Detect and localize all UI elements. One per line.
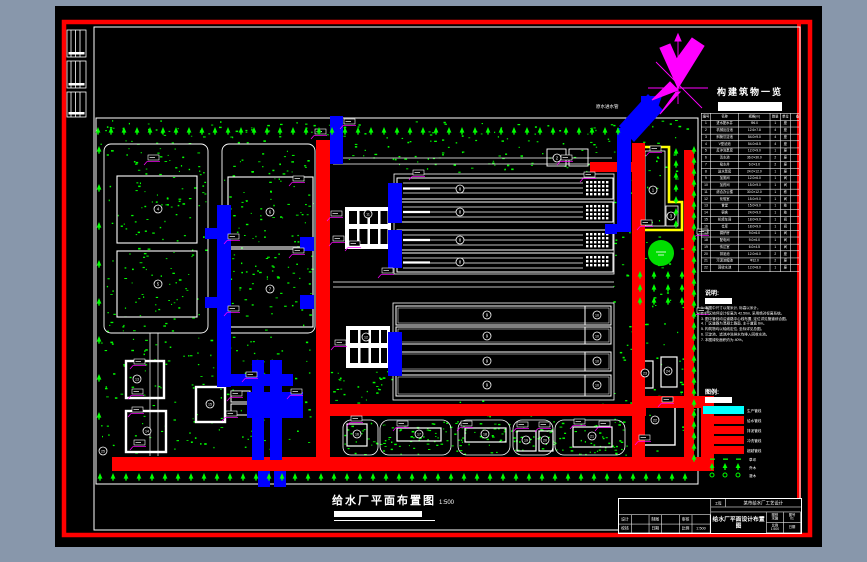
table-cell: 1 xyxy=(770,244,780,251)
table-cell: 15.0×9.0 xyxy=(739,196,770,203)
table-cell: 1 xyxy=(770,237,780,244)
svg-text:24: 24 xyxy=(666,370,670,374)
table-cell: 18.0×9.0 xyxy=(739,216,770,223)
title-block-company-cell xyxy=(619,499,710,515)
table-cell xyxy=(790,161,799,168)
table-cell xyxy=(790,189,799,196)
table-cell: 传达室 xyxy=(711,244,739,251)
legend-symbol-row: 草坪 xyxy=(705,455,799,463)
table-cell: 54.0×8.5 xyxy=(739,141,770,148)
field-value xyxy=(631,515,649,524)
table-cell: 间 xyxy=(780,216,790,223)
field-label: 校核 xyxy=(619,524,631,533)
table-cell: 座 xyxy=(780,127,790,134)
table-cell: 19 xyxy=(701,244,710,251)
table-cell xyxy=(790,148,799,155)
table-cell: 反冲洗泵房 xyxy=(711,148,739,155)
table-cell: 17 xyxy=(701,230,710,237)
project-name: 某市给水厂工艺设计 xyxy=(726,499,801,507)
table-cell xyxy=(790,120,799,127)
field-label: 制图 xyxy=(649,515,661,524)
legend-item: 排泥管线 xyxy=(703,425,799,435)
table-cell xyxy=(790,251,799,258)
field-value xyxy=(692,515,710,524)
title-block-meta-grid: 图别水施图号01比例1:500日期 xyxy=(767,512,801,533)
table-cell: 1 xyxy=(770,148,780,155)
drawing-name: 给水厂平面设计布置图 xyxy=(711,512,767,533)
table-cell: 4 xyxy=(770,127,780,134)
field-label: 审核 xyxy=(680,515,692,524)
svg-text:15: 15 xyxy=(208,403,212,407)
table-cell: 9.0×6.0 xyxy=(739,230,770,237)
svg-text:21: 21 xyxy=(590,435,594,439)
drawing-main-title: 给水厂平面布置图1:500 xyxy=(332,491,454,509)
svg-text:11: 11 xyxy=(366,213,370,217)
table-cell xyxy=(790,237,799,244)
svg-text:13: 13 xyxy=(135,378,139,382)
legend-symbol-label: 灌木 xyxy=(749,472,756,477)
svg-text:18: 18 xyxy=(483,433,487,437)
table-cell: 座 xyxy=(780,168,790,175)
table-cell: 21 xyxy=(701,258,710,265)
field-value: 1:500 xyxy=(692,524,710,533)
table-header: 数量 xyxy=(770,113,780,120)
table-header: 名称 xyxy=(711,113,739,120)
table-row: 7吸水井6.0×3.02座 xyxy=(701,161,799,168)
table-row: 4V型滤池54.0×8.54座 xyxy=(701,141,799,148)
legend-underline-bar xyxy=(705,397,732,403)
legend-symbol-label: 乔木 xyxy=(749,464,756,469)
table-cell: 座 xyxy=(780,134,790,141)
table-row: 17锅炉房9.0×6.01间 xyxy=(701,230,799,237)
table-row: 6清水池36.0×30.02座 xyxy=(701,155,799,162)
svg-text:14: 14 xyxy=(145,430,149,434)
table-cell: 3 xyxy=(701,134,710,141)
title-underline-bar xyxy=(718,102,782,111)
legend-color-bar xyxy=(703,436,744,444)
svg-text:10: 10 xyxy=(595,360,599,364)
table-cell: 12.0×8.0 xyxy=(739,265,770,272)
table-cell: 6.0×3.0 xyxy=(739,161,770,168)
table-cell: 间 xyxy=(780,223,790,230)
table-cell xyxy=(790,210,799,217)
svg-text:10: 10 xyxy=(595,384,599,388)
table-cell: 8 xyxy=(701,168,710,175)
meta-cell: 图别水施 xyxy=(767,512,784,522)
blower-building xyxy=(346,326,390,368)
table-cell: 加氯间 xyxy=(711,175,739,182)
field-value xyxy=(662,515,680,524)
table-cell xyxy=(790,182,799,189)
note-item: 7. 本图绿化面积约为 40%。 xyxy=(701,338,798,343)
table-cell: 污泥浓缩池 xyxy=(711,258,739,265)
table-cell: 1 xyxy=(770,223,780,230)
legend-color-bar xyxy=(703,446,744,454)
table-cell: 10 xyxy=(701,182,710,189)
table-cell: 2 xyxy=(770,251,780,258)
svg-text:16: 16 xyxy=(355,433,359,437)
table-cell: 18 xyxy=(701,237,710,244)
table-row: 16仓库18.0×9.01间 xyxy=(701,223,799,230)
table-cell xyxy=(790,196,799,203)
table-cell: 座 xyxy=(780,161,790,168)
table-cell: 9 xyxy=(701,175,710,182)
table-cell: 36.0×30.0 xyxy=(739,155,770,162)
table-cell: 2 xyxy=(770,258,780,265)
table-row: 12化验室15.0×9.01间 xyxy=(701,196,799,203)
table-cell: 2 xyxy=(701,127,710,134)
legend-item-label: 冲洗管线 xyxy=(747,437,761,442)
table-cell: 座 xyxy=(780,120,790,127)
table-cell: 综合办公楼 xyxy=(711,189,739,196)
table-cell: 座 xyxy=(780,258,790,265)
table-cell xyxy=(790,223,799,230)
table-header: 单位 xyxy=(780,113,790,120)
main-title-line xyxy=(334,520,435,521)
notes-title: 说明: xyxy=(705,288,799,297)
landscape-circle xyxy=(648,240,674,266)
table-cell: 机修车间 xyxy=(711,216,739,223)
table-row: 22回收水池12.0×8.01座 xyxy=(701,265,799,272)
table-cell xyxy=(790,265,799,272)
table-cell: 14 xyxy=(701,210,710,217)
table-cell: 15.0×9.0 xyxy=(739,182,770,189)
note-item: 2. 厂区地坪设计标高为 42.50m, 采用绝对标高系统。 xyxy=(701,311,798,316)
svg-text:10: 10 xyxy=(595,335,599,339)
table-cell xyxy=(790,168,799,175)
table-cell: 座 xyxy=(780,141,790,148)
table-cell xyxy=(790,230,799,237)
table-cell: 12.6×7.8 xyxy=(739,127,770,134)
table-cell: 6.0×4.5 xyxy=(739,244,770,251)
legend-item-label: 排泥管线 xyxy=(747,427,761,432)
table-cell: 54.0×9.0 xyxy=(739,134,770,141)
table-cell: 12.0×6.0 xyxy=(739,251,770,258)
title-block: 设计制图审核校核日期比例1:500 工程 某市给水厂工艺设计 给水厂平面设计布置… xyxy=(618,498,802,534)
svg-text:12: 12 xyxy=(364,336,368,340)
field-label: 设计 xyxy=(619,515,631,524)
table-cell: 排泥池 xyxy=(711,251,739,258)
legend-symbols: 草坪乔木灌木 xyxy=(701,455,799,479)
table-header: 规格(m) xyxy=(739,113,770,120)
table-header: 备注 xyxy=(790,113,799,120)
table-cell: 4 xyxy=(701,141,710,148)
table-cell: 锅炉房 xyxy=(711,230,739,237)
table-cell: 9.0×6.0 xyxy=(739,237,770,244)
table-row: 11综合办公楼30.0×12.01栋 xyxy=(701,189,799,196)
legend-item-label: 生产管线 xyxy=(747,407,761,412)
table-cell: 间 xyxy=(780,244,790,251)
table-row: 3斜管沉淀池54.0×9.04座 xyxy=(701,134,799,141)
table-cell: 栋 xyxy=(780,203,790,210)
table-cell xyxy=(790,141,799,148)
field-label: 比例 xyxy=(680,524,692,533)
table-cell: 15 xyxy=(701,216,710,223)
table-cell: 13 xyxy=(701,203,710,210)
table-cell: 间 xyxy=(780,175,790,182)
table-cell: 回收水池 xyxy=(711,265,739,272)
table-cell: 1 xyxy=(770,168,780,175)
table-cell: Φ6.0 xyxy=(739,120,770,127)
table-cell: 宿舍 xyxy=(711,210,739,217)
notes-list: 1. 本图中尺寸以毫米计, 标高以米计。2. 厂区地坪设计标高为 42.50m,… xyxy=(701,306,798,343)
legend-item-label: 给水管线 xyxy=(747,417,761,422)
table-row: 2机械反应池12.6×7.84座 xyxy=(701,127,799,134)
table-cell: 间 xyxy=(780,237,790,244)
table-cell: 6 xyxy=(701,155,710,162)
table-cell: 1 xyxy=(770,216,780,223)
table-cell: 座 xyxy=(780,155,790,162)
table-cell: 4 xyxy=(770,141,780,148)
table-cell: 1 xyxy=(770,196,780,203)
table-row: 14宿舍24.0×9.01栋 xyxy=(701,210,799,217)
table-cell: 座 xyxy=(780,265,790,272)
table-row: 18配电间9.0×6.01间 xyxy=(701,237,799,244)
table-row: 1进水配水井Φ6.01座 xyxy=(701,120,799,127)
table-cell: 20 xyxy=(701,251,710,258)
table-cell: 1 xyxy=(770,120,780,127)
table-cell: Φ12.0 xyxy=(739,258,770,265)
field-value xyxy=(631,524,649,533)
table-cell: 12 xyxy=(701,196,710,203)
table-row: 10加药间15.0×9.01间 xyxy=(701,182,799,189)
title-block-signature-grid: 设计制图审核校核日期比例1:500 xyxy=(619,515,710,533)
table-cell: 座 xyxy=(780,148,790,155)
table-cell: 栋 xyxy=(780,210,790,217)
project-label: 工程 xyxy=(711,499,726,507)
notes-underline-bar xyxy=(705,298,732,304)
legend-item: 生产管线 xyxy=(703,405,799,415)
legend-color-bar xyxy=(703,426,744,434)
table-cell: 4 xyxy=(770,134,780,141)
table-cell: 吸水井 xyxy=(711,161,739,168)
table-cell: 1 xyxy=(770,203,780,210)
main-title-scale: 1:500 xyxy=(439,500,454,506)
table-cell: 30.0×12.0 xyxy=(739,189,770,196)
table-cell: 食堂 xyxy=(711,203,739,210)
table-cell: 间 xyxy=(780,196,790,203)
svg-text:20: 20 xyxy=(543,439,547,443)
meta-cell: 比例1:500 xyxy=(767,523,784,533)
legend-items: 生产管线给水管线排泥管线冲洗管线超越管线 xyxy=(701,405,799,455)
table-cell: 2 xyxy=(770,155,780,162)
table-cell xyxy=(790,134,799,141)
legend-item: 超越管线 xyxy=(703,445,799,455)
field-value xyxy=(662,524,680,533)
table-cell: 间 xyxy=(780,182,790,189)
table-cell: V型滤池 xyxy=(711,141,739,148)
table-header: 编号 xyxy=(701,113,710,120)
table-cell: 1 xyxy=(770,230,780,237)
structures-table: 编号名称规格(m)数量单位备注1进水配水井Φ6.01座2机械反应池12.6×7.… xyxy=(701,113,799,272)
note-item: 3. 图中管线均沿道路中心线布置, 定位详见管道综合图。 xyxy=(701,317,798,322)
legend-item-label: 超越管线 xyxy=(747,447,761,452)
svg-text:19: 19 xyxy=(524,439,528,443)
table-cell xyxy=(790,175,799,182)
table-cell: 24.0×9.0 xyxy=(739,210,770,217)
note-item: 5. 构筑物均以轴线定位, 坐标详见总图。 xyxy=(701,327,798,332)
table-cell: 1 xyxy=(770,210,780,217)
table-cell xyxy=(790,155,799,162)
cad-viewport: 原水进水管 4567888899991010101011121231314151… xyxy=(0,0,867,562)
table-cell xyxy=(790,127,799,134)
table-cell xyxy=(790,244,799,251)
table-cell: 1 xyxy=(770,182,780,189)
legend-item: 给水管线 xyxy=(703,415,799,425)
table-cell: 栋 xyxy=(780,189,790,196)
table-cell: 加药间 xyxy=(711,182,739,189)
main-title-text: 给水厂平面布置图 xyxy=(332,495,436,507)
note-item: 6. 沉淀池、滤池冲洗排水均排入回收水池。 xyxy=(701,333,798,338)
table-cell: 清水池 xyxy=(711,155,739,162)
table-row: 20排泥池12.0×6.02座 xyxy=(701,251,799,258)
svg-text:22: 22 xyxy=(653,419,657,423)
legend-symbol-row: 灌木 xyxy=(705,471,799,479)
main-title-bar xyxy=(334,511,422,517)
table-cell: 18.0×9.0 xyxy=(739,223,770,230)
svg-text:10: 10 xyxy=(595,314,599,318)
table-row: 9加氯间12.0×6.01间 xyxy=(701,175,799,182)
structures-table-title: 构建筑物一览 xyxy=(701,85,799,98)
table-cell: 机械反应池 xyxy=(711,127,739,134)
table-cell: 16 xyxy=(701,223,710,230)
meta-cell: 图号01 xyxy=(784,512,801,522)
table-cell: 1 xyxy=(770,265,780,272)
table-cell: 配电间 xyxy=(711,237,739,244)
table-cell: 进水配水井 xyxy=(711,120,739,127)
table-cell: 24.0×12.0 xyxy=(739,168,770,175)
table-cell: 11 xyxy=(701,189,710,196)
legend-title: 图例: xyxy=(705,387,799,396)
legend-color-bar xyxy=(703,406,744,414)
legend-color-bar xyxy=(703,416,744,424)
svg-text:23: 23 xyxy=(643,372,647,376)
table-row: 15机修车间18.0×9.01间 xyxy=(701,216,799,223)
field-label: 日期 xyxy=(649,524,661,533)
table-cell: 仓库 xyxy=(711,223,739,230)
table-cell: 12.0×6.0 xyxy=(739,175,770,182)
raw-water-pipe-label: 原水进水管 xyxy=(596,103,619,110)
table-cell: 座 xyxy=(780,251,790,258)
table-cell: 22 xyxy=(701,265,710,272)
table-cell: 1 xyxy=(701,120,710,127)
legend-symbol-label: 草坪 xyxy=(749,456,756,461)
table-cell: 1 xyxy=(770,189,780,196)
table-cell: 1 xyxy=(770,175,780,182)
table-cell: 化验室 xyxy=(711,196,739,203)
table-row: 13食堂15.0×9.01栋 xyxy=(701,203,799,210)
table-cell xyxy=(790,216,799,223)
table-cell: 2 xyxy=(770,161,780,168)
table-row: 5反冲洗泵房12.0×9.01座 xyxy=(701,148,799,155)
table-cell: 15.0×9.0 xyxy=(739,203,770,210)
table-cell: 送水泵房 xyxy=(711,168,739,175)
meta-cell: 日期 xyxy=(784,523,801,533)
table-cell: 7 xyxy=(701,161,710,168)
table-row: 19传达室6.0×4.51间 xyxy=(701,244,799,251)
table-cell: 5 xyxy=(701,148,710,155)
right-info-panel: 构建筑物一览 编号名称规格(m)数量单位备注1进水配水井Φ6.01座2机械反应池… xyxy=(701,85,799,479)
table-cell: 斜管沉淀池 xyxy=(711,134,739,141)
note-item: 1. 本图中尺寸以毫米计, 标高以米计。 xyxy=(701,306,798,311)
legend-symbol-row: 乔木 xyxy=(705,463,799,471)
table-row: 8送水泵房24.0×12.01座 xyxy=(701,168,799,175)
legend-item: 冲洗管线 xyxy=(703,435,799,445)
table-cell: 间 xyxy=(780,230,790,237)
table-row: 21污泥浓缩池Φ12.02座 xyxy=(701,258,799,265)
table-cell: 12.0×9.0 xyxy=(739,148,770,155)
table-cell xyxy=(790,258,799,265)
note-item: 4. 厂区道路为混凝土路面, 主干道宽 6m。 xyxy=(701,322,798,327)
table-cell xyxy=(790,203,799,210)
svg-text:25: 25 xyxy=(101,450,105,454)
svg-text:17: 17 xyxy=(417,433,421,437)
